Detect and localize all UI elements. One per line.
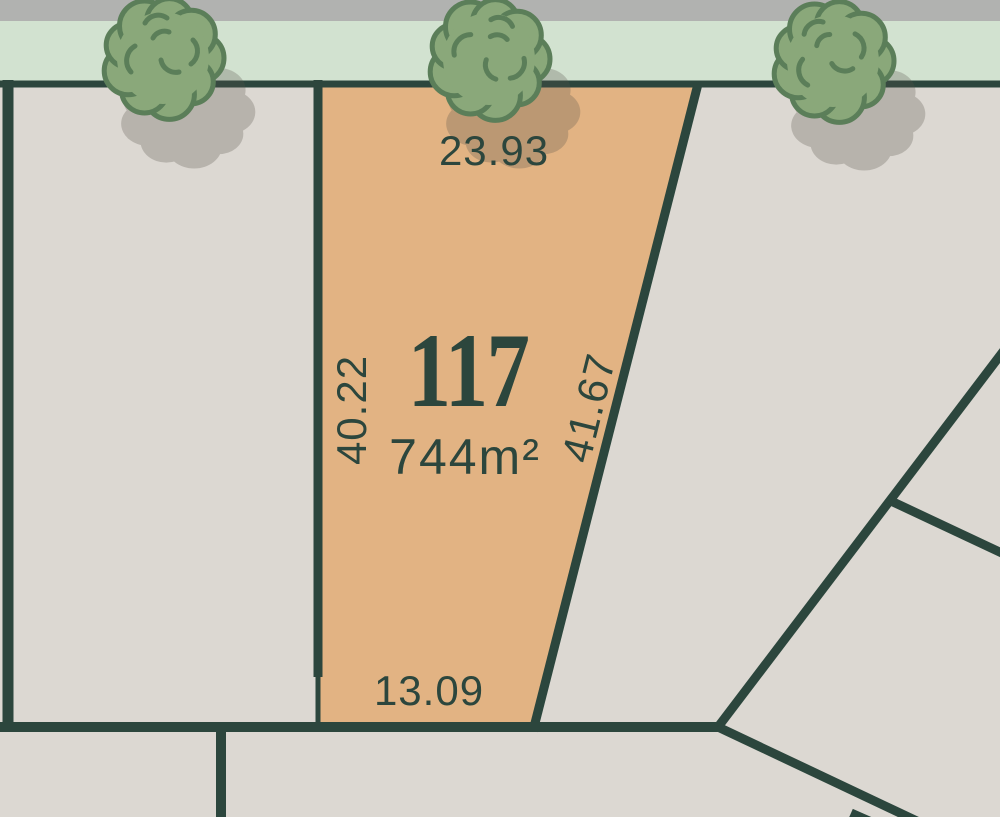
subdivision-map: 23.93 40.22 41.67 13.09 117 744m² — [0, 0, 1000, 817]
dimension-left: 40.22 — [328, 355, 376, 465]
dimension-top: 23.93 — [439, 127, 549, 175]
dimension-bottom: 13.09 — [374, 667, 484, 715]
lot-area: 744m² — [389, 428, 541, 486]
tree-icon — [430, 0, 550, 120]
tree-icon — [774, 2, 894, 123]
lot-number: 117 — [408, 310, 529, 432]
